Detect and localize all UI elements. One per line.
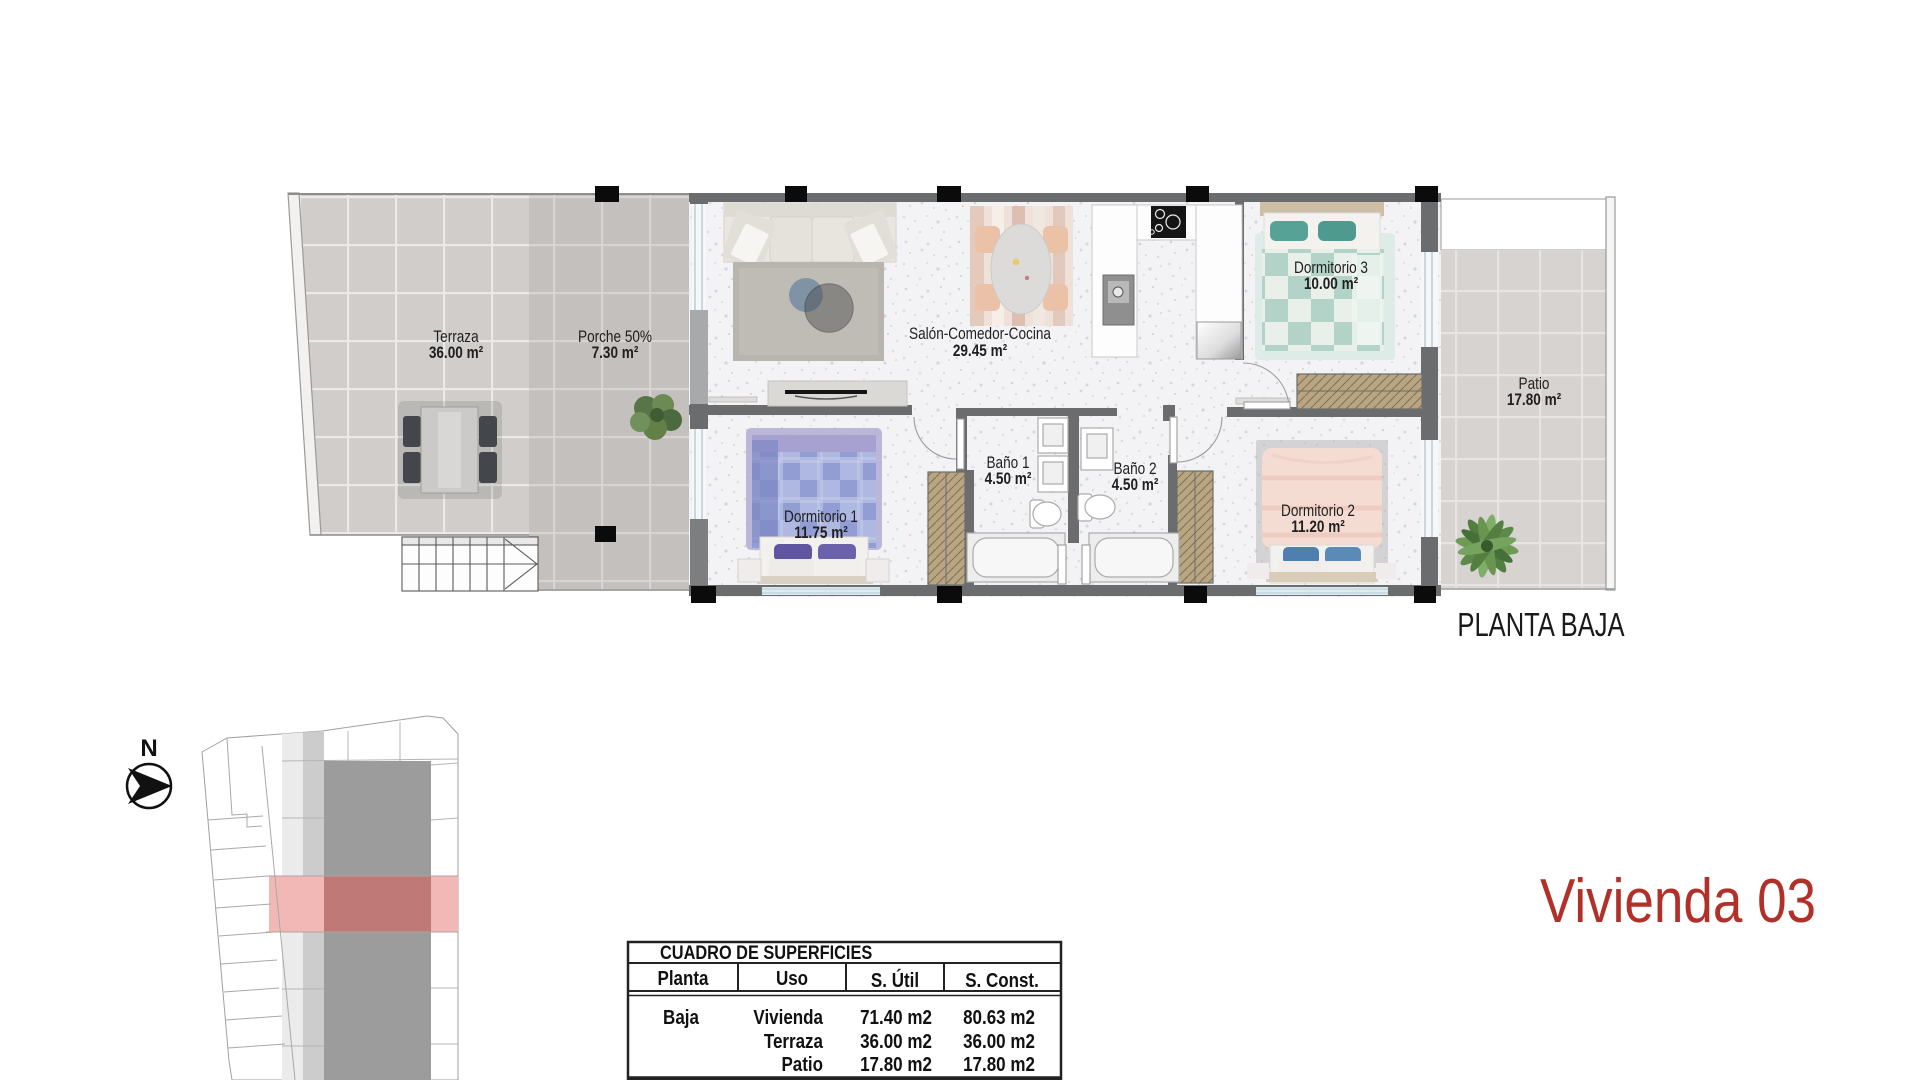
svg-text:S. Const.: S. Const. — [965, 969, 1039, 992]
svg-text:17.80 m2: 17.80 m2 — [963, 1053, 1035, 1076]
svg-text:PLANTA BAJA: PLANTA BAJA — [1457, 607, 1624, 644]
svg-text:17.80 m²: 17.80 m² — [1507, 391, 1561, 410]
svg-text:Patio: Patio — [781, 1053, 823, 1076]
svg-text:S. Útil: S. Útil — [871, 969, 919, 992]
svg-text:Salón-Comedor-Cocina: Salón-Comedor-Cocina — [909, 325, 1051, 344]
svg-text:10.00 m²: 10.00 m² — [1304, 275, 1358, 294]
svg-text:36.00 m2: 36.00 m2 — [963, 1030, 1035, 1053]
svg-text:36.00 m²: 36.00 m² — [429, 344, 483, 363]
svg-text:N: N — [140, 735, 157, 762]
svg-text:Vivienda: Vivienda — [753, 1006, 823, 1029]
svg-text:11.75 m²: 11.75 m² — [794, 524, 848, 543]
svg-text:7.30 m²: 7.30 m² — [592, 344, 639, 363]
svg-text:4.50 m²: 4.50 m² — [1112, 476, 1159, 495]
svg-text:4.50 m²: 4.50 m² — [985, 470, 1032, 489]
svg-text:CUADRO DE SUPERFICIES: CUADRO DE SUPERFICIES — [660, 942, 872, 963]
svg-text:11.20 m²: 11.20 m² — [1291, 518, 1345, 537]
svg-text:Vivienda 03: Vivienda 03 — [1540, 867, 1816, 936]
svg-text:Baja: Baja — [663, 1006, 700, 1029]
svg-text:17.80 m2: 17.80 m2 — [860, 1053, 932, 1076]
svg-text:80.63 m2: 80.63 m2 — [963, 1006, 1035, 1029]
svg-text:29.45 m²: 29.45 m² — [953, 342, 1007, 361]
svg-text:71.40 m2: 71.40 m2 — [860, 1006, 932, 1029]
svg-text:Planta: Planta — [658, 967, 710, 990]
svg-text:Uso: Uso — [776, 967, 808, 990]
svg-text:Terraza: Terraza — [764, 1030, 824, 1053]
svg-text:36.00 m2: 36.00 m2 — [860, 1030, 932, 1053]
